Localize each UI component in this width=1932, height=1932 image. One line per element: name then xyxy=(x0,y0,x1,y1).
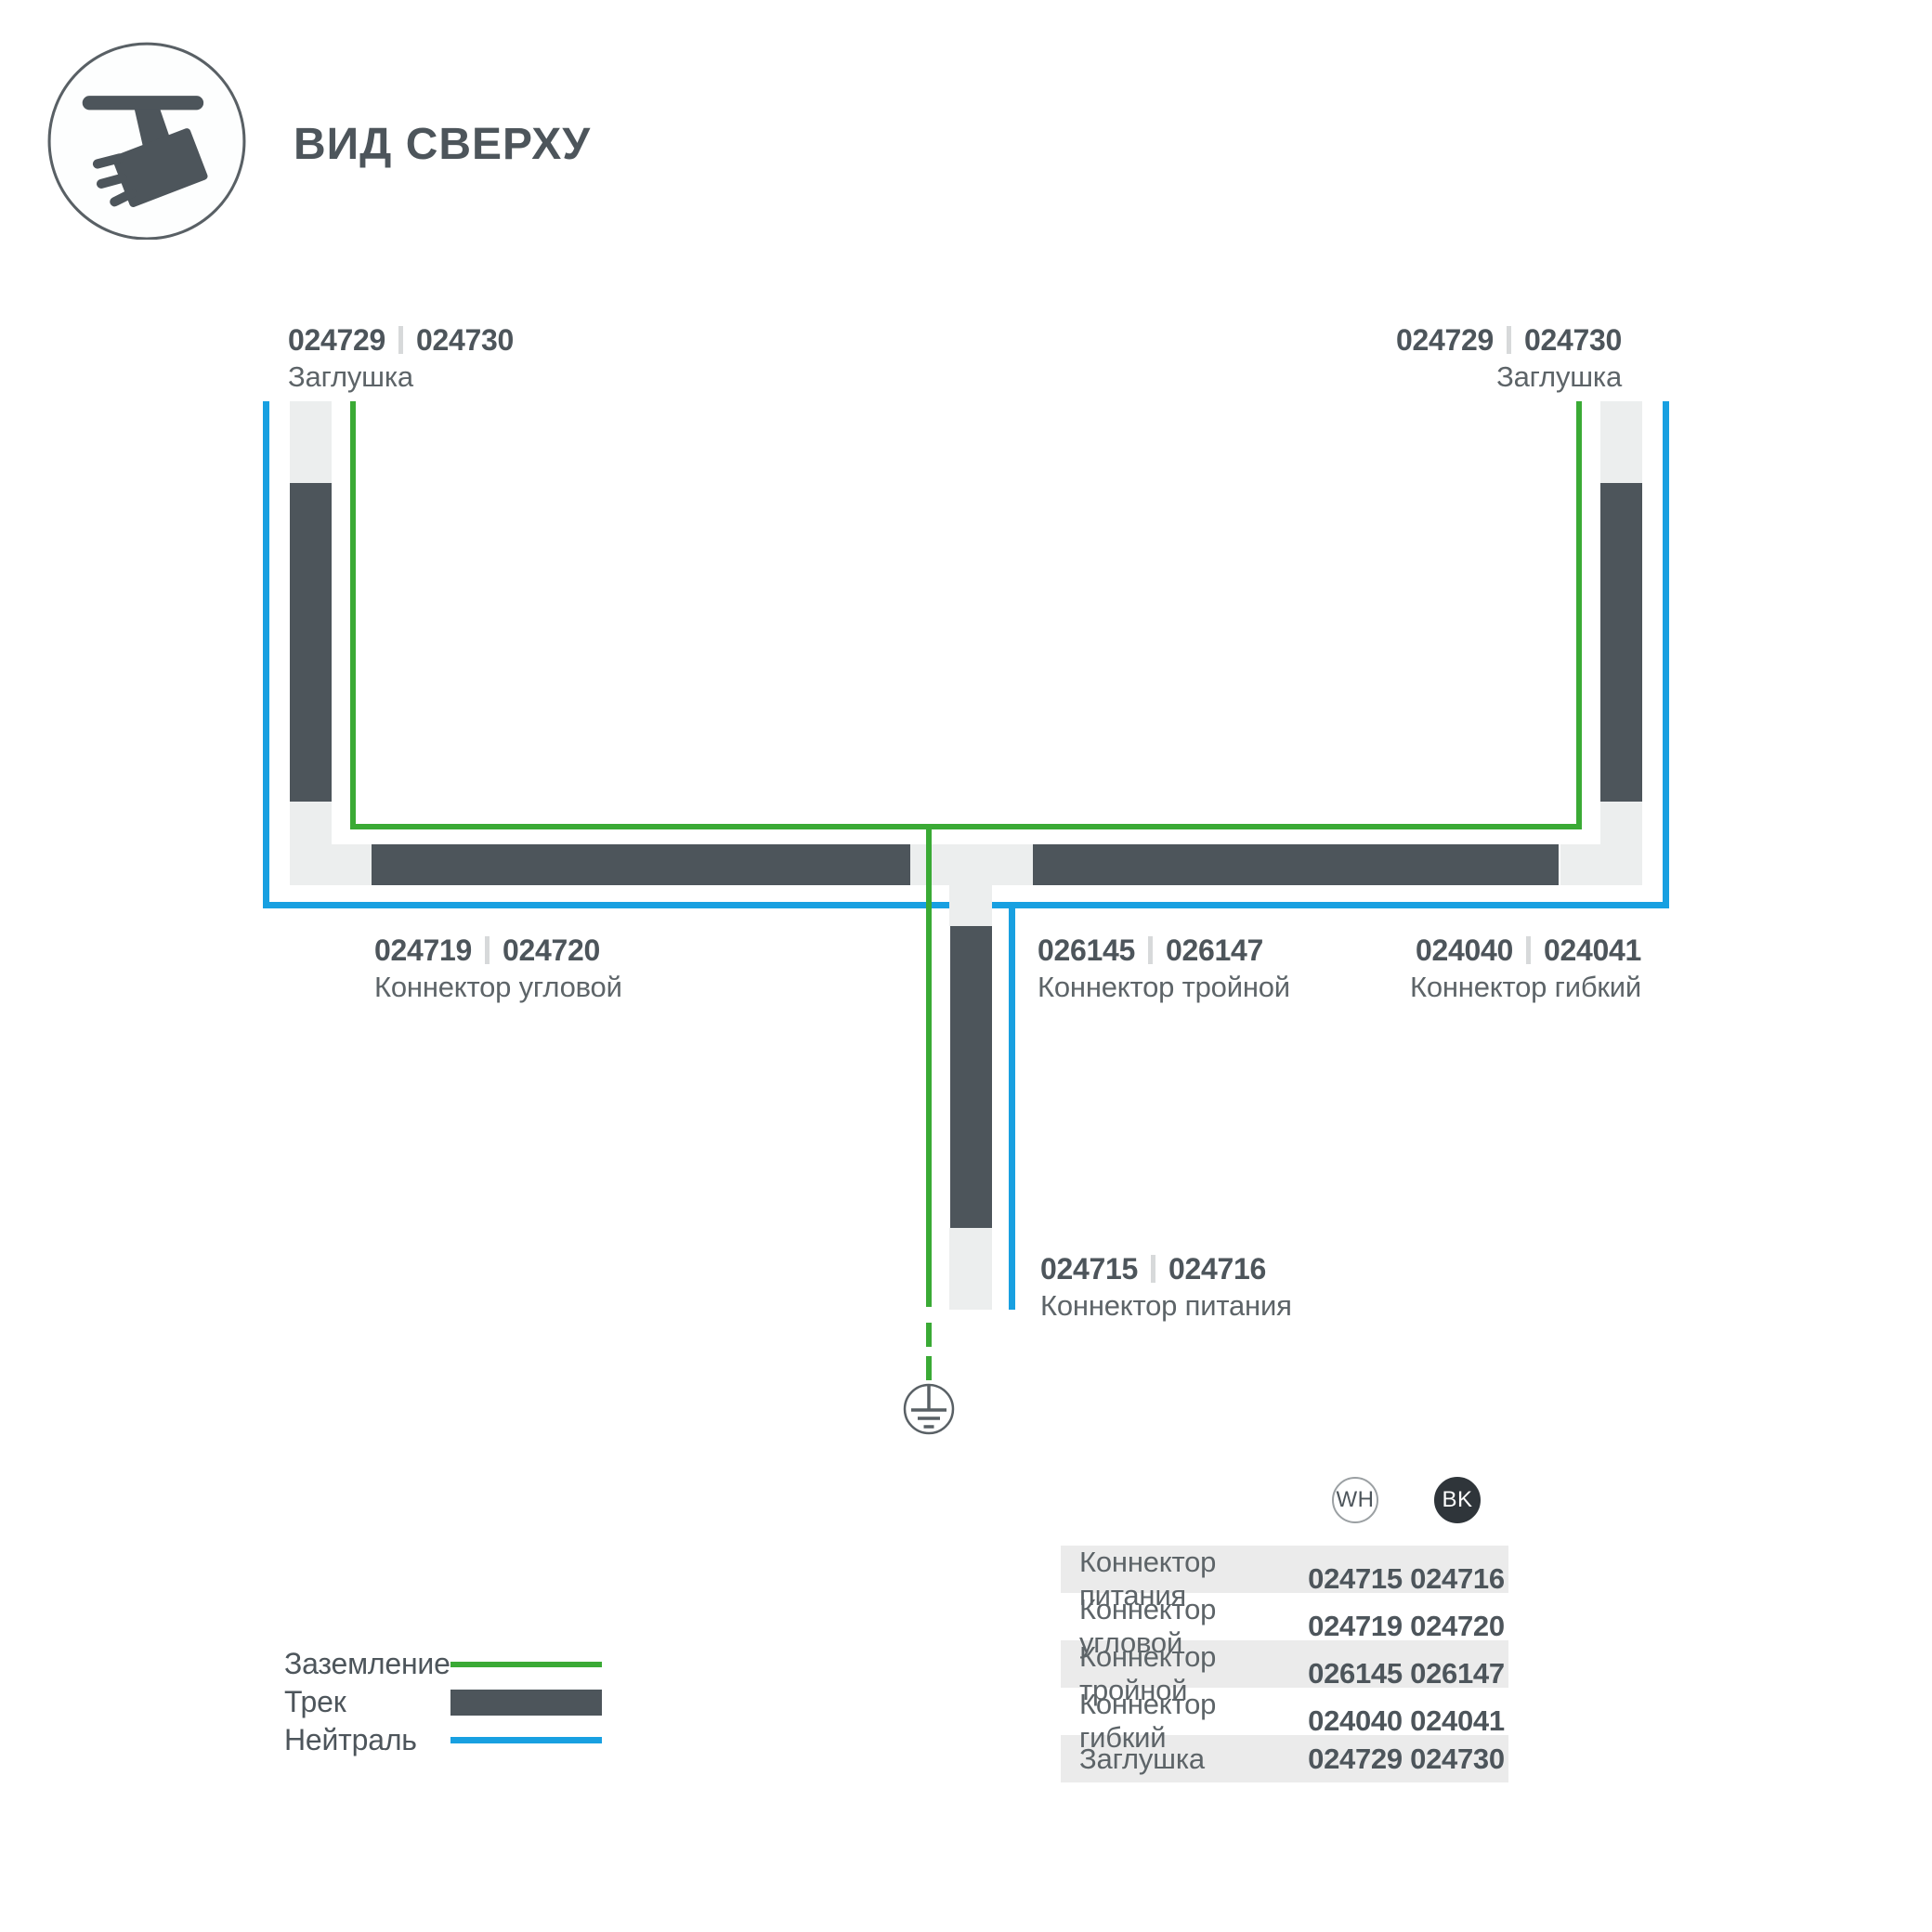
endcap-right-block xyxy=(1600,401,1642,483)
neutral-line-drop xyxy=(1009,902,1015,1310)
corner-connector-left-h xyxy=(290,844,372,885)
part-name: Заглушка xyxy=(288,361,514,393)
row-code-wh: 026145 xyxy=(1304,1657,1406,1690)
legend-item-neutral: Нейтраль xyxy=(284,1721,602,1759)
endcap-left-block xyxy=(290,401,332,483)
legend-label: Заземление xyxy=(284,1647,450,1681)
color-badge-black: BK xyxy=(1434,1477,1481,1523)
code-separator xyxy=(1526,936,1531,964)
legend: Заземление Трек Нейтраль xyxy=(284,1645,602,1759)
ground-line-right xyxy=(1576,401,1582,829)
track-spotlight-icon xyxy=(46,39,247,240)
legend-label: Нейтраль xyxy=(284,1723,450,1757)
track-vertical-left xyxy=(290,483,332,802)
table-row: Коннектор гибкий 024040 024041 xyxy=(1061,1688,1508,1735)
row-code-wh: 024715 xyxy=(1304,1562,1406,1596)
row-name: Заглушка xyxy=(1079,1743,1304,1776)
page-title: ВИД СВЕРХУ xyxy=(294,119,591,170)
neutral-line-right xyxy=(1663,401,1669,908)
corner-connector-left-v xyxy=(290,802,332,844)
part-name: Заглушка xyxy=(1232,361,1622,393)
row-code-bk: 024716 xyxy=(1406,1562,1508,1596)
code-separator xyxy=(1148,936,1153,964)
row-code-wh: 024040 xyxy=(1304,1704,1406,1738)
triple-connector-stem xyxy=(949,885,992,926)
legend-item-ground: Заземление xyxy=(284,1645,602,1683)
flex-connector-h xyxy=(1560,844,1642,885)
parts-table: WH BK Коннектор питания 024715 024716 Ко… xyxy=(1061,1477,1508,1782)
track-vertical-stem xyxy=(950,926,992,1228)
flex-connector-v xyxy=(1600,802,1642,844)
code-separator xyxy=(1507,326,1511,354)
neutral-line-swatch xyxy=(450,1737,602,1743)
table-row: Коннектор питания 024715 024716 xyxy=(1061,1546,1508,1593)
row-code-bk: 024041 xyxy=(1406,1704,1508,1738)
track-horizontal-right xyxy=(1033,844,1559,885)
track-bar-swatch xyxy=(450,1690,602,1716)
ground-earth-icon xyxy=(896,1377,961,1442)
label-flex-connector: 024040024041 Коннектор гибкий xyxy=(1251,933,1641,1003)
ground-line-left xyxy=(350,401,356,829)
label-endcap-left: 024729024730 Заглушка xyxy=(288,323,514,393)
track-horizontal-left xyxy=(372,844,910,885)
ground-line-top xyxy=(350,824,1582,829)
part-name: Коннектор питания xyxy=(1040,1290,1292,1322)
part-codes: 024715024716 xyxy=(1040,1252,1292,1286)
part-name: Коннектор угловой xyxy=(374,972,622,1003)
color-badge-white: WH xyxy=(1332,1477,1378,1523)
label-power-connector: 024715024716 Коннектор питания xyxy=(1040,1252,1292,1322)
table-row: Коннектор тройной 026145 026147 xyxy=(1061,1640,1508,1688)
code-separator xyxy=(1151,1255,1155,1283)
part-codes: 024729024730 xyxy=(288,323,514,357)
row-code-bk: 026147 xyxy=(1406,1657,1508,1690)
code-separator xyxy=(485,936,490,964)
row-code-wh: 024719 xyxy=(1304,1610,1406,1643)
part-name: Коннектор гибкий xyxy=(1251,972,1641,1003)
ground-line-dash-1 xyxy=(926,1323,932,1347)
ground-line-center xyxy=(926,824,932,1307)
neutral-line-left xyxy=(263,401,269,908)
ground-line-swatch xyxy=(450,1662,602,1667)
code-separator xyxy=(398,326,403,354)
legend-label: Трек xyxy=(284,1685,450,1719)
table-row: Заглушка 024729 024730 xyxy=(1061,1735,1508,1782)
part-codes: 024719024720 xyxy=(374,933,622,967)
legend-item-track: Трек xyxy=(284,1683,602,1721)
label-corner-connector: 024719024720 Коннектор угловой xyxy=(374,933,622,1003)
page: ВИД СВЕРХУ 024729024730 Заглушка 0247290… xyxy=(0,0,1932,1932)
power-connector-block xyxy=(949,1228,992,1310)
label-endcap-right: 024729024730 Заглушка xyxy=(1232,323,1622,393)
part-codes: 024729024730 xyxy=(1232,323,1622,357)
part-codes: 024040024041 xyxy=(1251,933,1641,967)
table-row: Коннектор угловой 024719 024720 xyxy=(1061,1593,1508,1640)
row-code-wh: 024729 xyxy=(1304,1743,1406,1776)
row-code-bk: 024730 xyxy=(1406,1743,1508,1776)
track-vertical-right xyxy=(1600,483,1642,802)
row-code-bk: 024720 xyxy=(1406,1610,1508,1643)
table-header: WH BK xyxy=(1061,1477,1508,1546)
